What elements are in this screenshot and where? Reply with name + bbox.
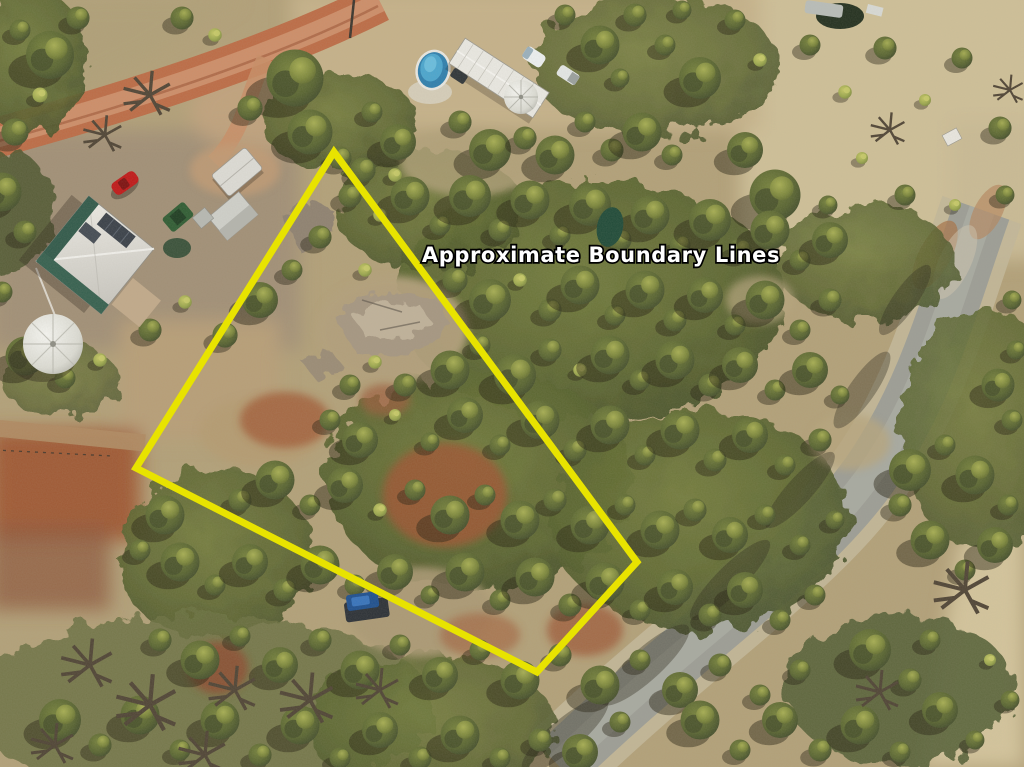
aerial-photo: Approximate Boundary Lines <box>0 0 1024 767</box>
boundary-label: Approximate Boundary Lines <box>422 243 780 267</box>
photo-grain <box>0 0 1024 767</box>
